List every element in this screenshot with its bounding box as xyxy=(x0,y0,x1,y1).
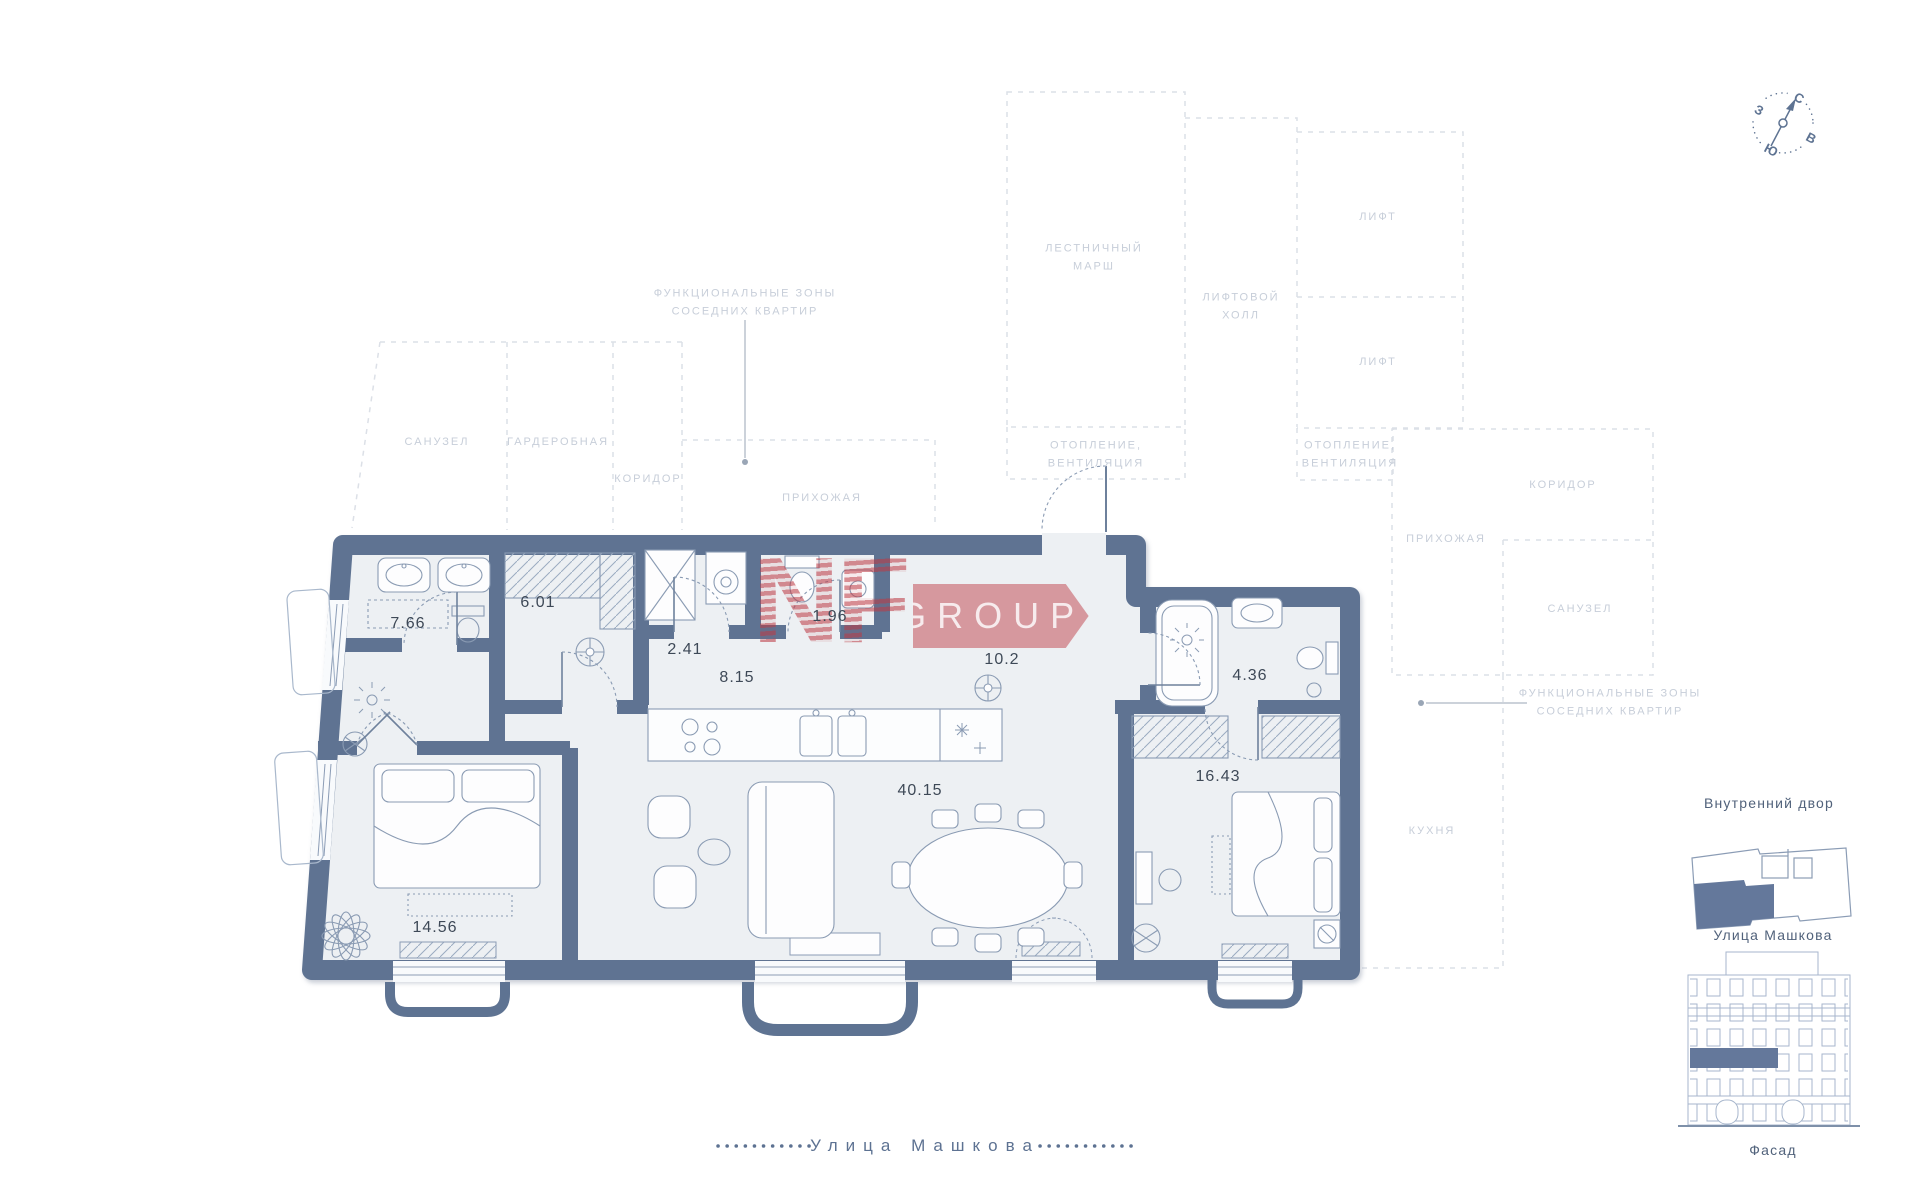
window-4 xyxy=(1218,944,1292,982)
facade-drawing xyxy=(1678,952,1860,1126)
floor-plan-page: С В Ю З NF GROUP ФУНКЦИОНАЛЬНЫЕ ЗОНЫ СОС… xyxy=(0,0,1920,1204)
logo-group-text: GROUP xyxy=(898,595,1085,637)
nf-group-watermark: NF GROUP xyxy=(752,552,1089,650)
ceiling-light-hall xyxy=(975,675,1001,701)
kitchen-counter xyxy=(648,709,1002,761)
site-plan-unit-highlight xyxy=(1694,880,1774,929)
ceiling-light-corridor xyxy=(576,638,604,666)
compass: С В Ю З xyxy=(1747,87,1819,160)
entrance-door xyxy=(1042,466,1106,556)
logo-nf-letters: NF xyxy=(752,552,907,650)
facade-unit-highlight xyxy=(1690,1048,1778,1068)
window-1 xyxy=(393,942,505,982)
bay-windows xyxy=(390,979,1298,1030)
site-plan xyxy=(1692,848,1851,929)
logo-band: GROUP xyxy=(913,584,1089,648)
